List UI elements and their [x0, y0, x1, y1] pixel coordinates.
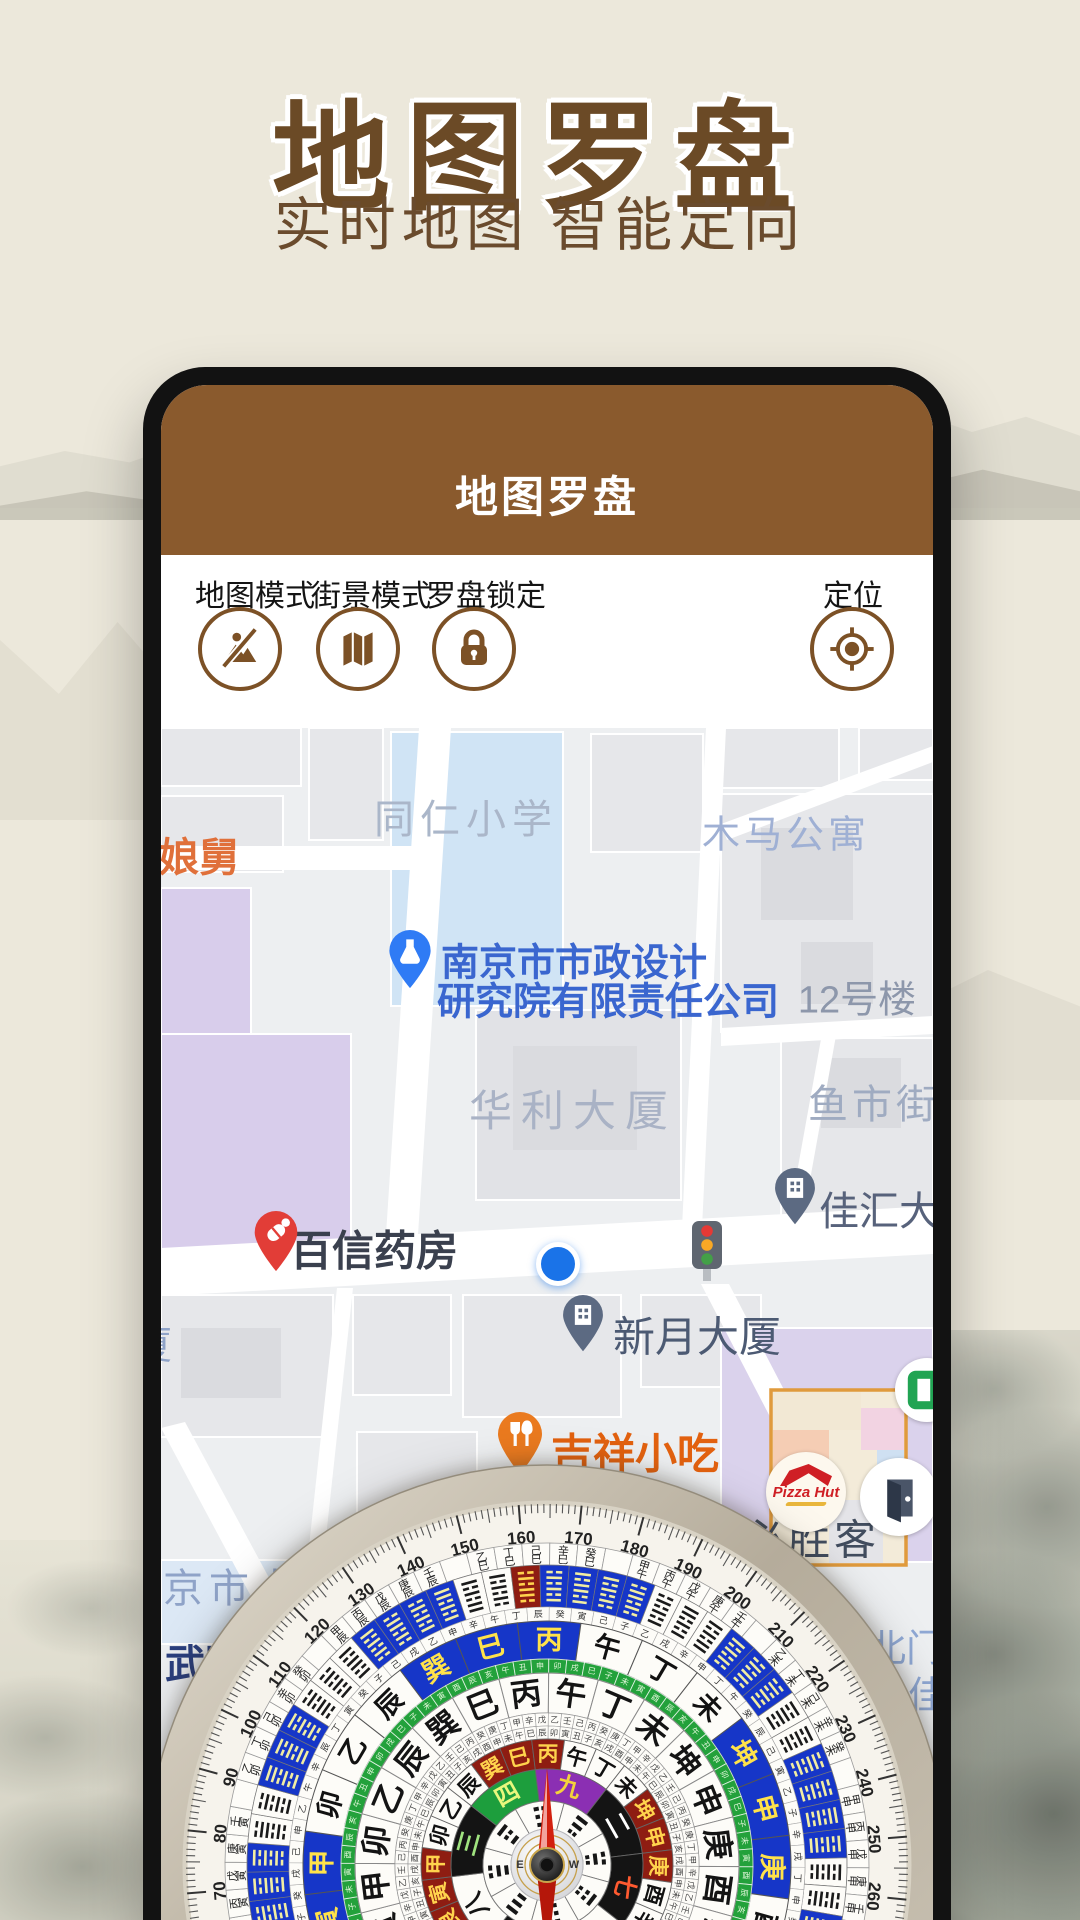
- phone-screen: 地图罗盘 地图模式 街景模式 罗盘锁定 定位: [161, 385, 933, 1920]
- svg-text:酉: 酉: [741, 1871, 750, 1879]
- svg-text:辛: 辛: [524, 1715, 534, 1726]
- locate-button[interactable]: [810, 607, 894, 691]
- svg-text:甲: 甲: [307, 1849, 337, 1876]
- svg-text:寅: 寅: [741, 1854, 751, 1862]
- svg-text:未: 未: [344, 1885, 355, 1894]
- svg-text:E: E: [516, 1859, 523, 1871]
- lock-icon: [450, 625, 498, 673]
- svg-text:丙: 丙: [537, 1742, 558, 1766]
- svg-text:丁: 丁: [792, 1873, 802, 1883]
- svg-text:亥: 亥: [673, 1844, 684, 1854]
- svg-text:庚: 庚: [646, 1855, 670, 1876]
- ink-wash-left: [0, 1540, 150, 1920]
- svg-text:申: 申: [292, 1825, 304, 1835]
- map-label-huali: 华利大厦: [469, 1077, 677, 1139]
- svg-text:酉: 酉: [674, 1867, 684, 1876]
- map-mode-label: 地图模式: [195, 571, 315, 615]
- svg-text:丑: 丑: [518, 1663, 527, 1673]
- map-label-laoniangjiu: 老娘舅: [161, 825, 239, 883]
- svg-text:乙: 乙: [550, 1714, 559, 1724]
- svg-text:申: 申: [536, 1660, 544, 1670]
- map-label-nanjing-line2: 研究院有限责任公司: [437, 971, 779, 1026]
- svg-text:辛: 辛: [687, 1868, 697, 1878]
- map-label-baixin: 百信药房: [290, 1218, 458, 1279]
- map-label-school: 同仁小学: [374, 787, 558, 845]
- svg-text:巳: 巳: [526, 1728, 536, 1739]
- traffic-light-icon: [690, 1219, 724, 1281]
- svg-text:戌: 戌: [290, 1869, 301, 1878]
- poi-pin-xinyue-building[interactable]: [561, 1295, 605, 1353]
- poi-pin-design-institute[interactable]: [387, 930, 433, 990]
- svg-text:申: 申: [790, 1895, 802, 1905]
- svg-text:癸: 癸: [555, 1608, 565, 1619]
- phone-frame: 地图罗盘 地图模式 街景模式 罗盘锁定 定位: [143, 367, 951, 1920]
- map-icon: [333, 624, 383, 674]
- svg-text:甲: 甲: [424, 1853, 448, 1874]
- svg-text:丙: 丙: [535, 1625, 562, 1655]
- map-view[interactable]: 同仁小学 木马公寓 老娘舅 南京市市政设计 研究院有限责任公司 12号楼 华利大…: [161, 728, 933, 1920]
- poi-pin-jiahui-building[interactable]: [773, 1168, 817, 1226]
- svg-text:寅: 寅: [234, 1843, 249, 1855]
- svg-text:戌: 戌: [674, 1856, 684, 1865]
- svg-text:甲: 甲: [357, 1868, 396, 1903]
- svg-text:卯: 卯: [553, 1662, 561, 1671]
- svg-text:戊: 戊: [537, 1714, 546, 1724]
- svg-text:丙: 丙: [397, 1840, 408, 1850]
- map-mode-button[interactable]: [198, 607, 282, 691]
- ink-wash-right: [948, 1330, 1080, 1920]
- svg-text:午: 午: [553, 1675, 589, 1714]
- svg-text:庚: 庚: [757, 1853, 788, 1880]
- map-label-jiahui: 佳汇大厦: [819, 1179, 933, 1237]
- poi-pin-pharmacy[interactable]: [252, 1211, 300, 1273]
- svg-text:辰: 辰: [538, 1727, 547, 1737]
- svg-text:卯: 卯: [549, 1727, 558, 1737]
- svg-text:酉: 酉: [344, 1850, 353, 1858]
- map-label-xinyue: 新月大厦: [613, 1304, 781, 1365]
- svg-text:申: 申: [846, 1849, 859, 1860]
- svg-text:W: W: [569, 1859, 580, 1871]
- svg-text:申: 申: [410, 1842, 421, 1852]
- svg-text:甲: 甲: [687, 1855, 697, 1864]
- current-location-dot: [536, 1242, 580, 1286]
- svg-text:己: 己: [291, 1847, 301, 1857]
- svg-text:辰: 辰: [345, 1833, 355, 1842]
- svg-text:申: 申: [673, 1879, 684, 1889]
- svg-text:寅: 寅: [577, 1610, 587, 1622]
- svg-text:寅: 寅: [342, 1868, 352, 1876]
- svg-text:己: 己: [396, 1852, 406, 1862]
- svg-text:壬: 壬: [396, 1865, 406, 1874]
- exit-poi-icon[interactable]: [895, 1358, 933, 1422]
- page-subtitle: 实时地图 智能定向: [0, 178, 1080, 262]
- satellite-off-icon: [214, 623, 266, 675]
- svg-text:乙: 乙: [397, 1878, 408, 1888]
- svg-text:丁: 丁: [686, 1842, 697, 1852]
- svg-text:戌: 戌: [409, 1865, 419, 1874]
- svg-text:戌: 戌: [570, 1662, 579, 1673]
- compass-lock-button[interactable]: [432, 607, 516, 691]
- luopan-rings: 0102030405060708090100110120130140150160…: [161, 1465, 933, 1920]
- svg-text:辰: 辰: [739, 1888, 749, 1897]
- svg-text:癸: 癸: [291, 1891, 303, 1901]
- svg-text:寅: 寅: [234, 1870, 248, 1881]
- street-mode-button[interactable]: [316, 607, 400, 691]
- svg-text:酉: 酉: [698, 1871, 737, 1907]
- locate-target-icon: [826, 623, 878, 675]
- map-label-sha-partial: 厦: [161, 1315, 172, 1370]
- svg-text:亥: 亥: [410, 1876, 421, 1886]
- svg-text:未: 未: [740, 1836, 751, 1845]
- svg-text:巳: 巳: [557, 1554, 569, 1567]
- svg-text:申: 申: [845, 1875, 859, 1887]
- svg-text:辛: 辛: [791, 1829, 803, 1839]
- map-label-building12: 12号楼: [798, 969, 916, 1024]
- svg-text:庚: 庚: [698, 1827, 737, 1862]
- luopan-compass[interactable]: 0102030405060708090100110120130140150160…: [161, 1455, 933, 1920]
- map-label-yushijie: 鱼市街: [808, 1072, 933, 1130]
- svg-text:巳: 巳: [531, 1554, 542, 1566]
- svg-text:卯: 卯: [357, 1823, 396, 1859]
- svg-text:酉: 酉: [409, 1854, 419, 1863]
- toolbar: 地图模式 街景模式 罗盘锁定 定位: [161, 555, 933, 728]
- svg-text:丁: 丁: [511, 1610, 521, 1621]
- app-header: 地图罗盘: [161, 385, 933, 555]
- svg-text:戌: 戌: [793, 1852, 804, 1861]
- svg-text:辰: 辰: [534, 1609, 543, 1619]
- map-label-muma: 木马公寓: [702, 804, 870, 859]
- app-header-title: 地图罗盘: [161, 463, 933, 525]
- page: 地图罗盘 实时地图 智能定向 地图罗盘 地图模式 街景模式 罗盘锁定 定位: [0, 0, 1080, 1920]
- svg-text:丙: 丙: [509, 1675, 544, 1714]
